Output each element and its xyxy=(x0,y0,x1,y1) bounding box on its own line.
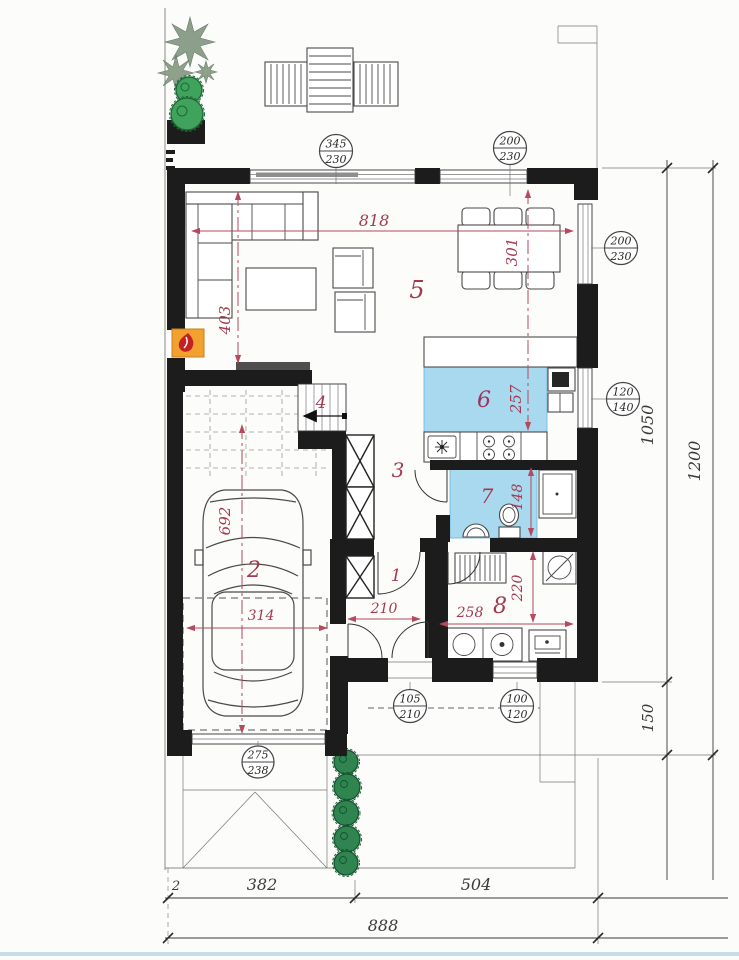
window-dining-right xyxy=(578,204,592,284)
bushes-row xyxy=(332,749,362,877)
armchairs xyxy=(333,248,375,332)
site-dim-main-height: 1050 xyxy=(638,405,657,446)
svg-text:140: 140 xyxy=(613,401,634,414)
car-mirror xyxy=(303,550,311,565)
room-label-garage: 2 xyxy=(246,558,261,583)
svg-text:200: 200 xyxy=(610,235,632,248)
svg-text:120: 120 xyxy=(613,386,634,399)
entrance-threshold xyxy=(388,662,432,678)
room-label-bath: 7 xyxy=(481,484,494,508)
scan-edge-line xyxy=(0,952,739,956)
svg-text:120: 120 xyxy=(507,708,528,721)
dim-circle-dining-right: 200 230 xyxy=(591,232,638,265)
dim-utility-depth: 220 xyxy=(510,575,526,603)
dim-dining-depth: 301 xyxy=(503,238,521,267)
dim-circle-kitchen-window: 120 140 xyxy=(591,383,640,416)
svg-text:230: 230 xyxy=(499,150,521,163)
window-utility xyxy=(493,662,537,678)
bush-icon xyxy=(333,773,362,802)
svg-text:345: 345 xyxy=(326,138,347,151)
bathroom-door xyxy=(415,470,447,502)
site-dim-house-span: 504 xyxy=(461,875,492,894)
dim-living-depth: 403 xyxy=(216,306,234,336)
site-dim-garage-span: 382 xyxy=(247,875,278,894)
terrace-furniture xyxy=(265,48,398,112)
entrance-door xyxy=(392,622,428,658)
bush-icon xyxy=(332,799,360,827)
dim-circle-entry-door: 105 210 xyxy=(394,682,427,723)
svg-text:230: 230 xyxy=(610,250,632,263)
fireplace-icon xyxy=(172,329,204,357)
window-kitchen xyxy=(578,368,592,428)
trees-top-left xyxy=(158,17,217,132)
site-dim-porch-height: 150 xyxy=(639,703,657,732)
bush-icon xyxy=(333,850,360,877)
car-mirror xyxy=(195,550,203,565)
dim-entry-width: 210 xyxy=(370,601,398,617)
garage-door xyxy=(192,734,325,744)
washing-machine-icon xyxy=(543,551,576,584)
svg-text:105: 105 xyxy=(400,693,421,706)
floor-plan-drawing: 818 301 403 257 148 692 314 210 258 220 … xyxy=(0,0,739,960)
roof-outline xyxy=(183,792,327,868)
dim-bath-depth: 148 xyxy=(510,484,526,511)
dim-garage-length: 692 xyxy=(216,507,234,536)
radiator xyxy=(455,553,506,583)
window-terrace-door xyxy=(250,170,415,183)
svg-text:100: 100 xyxy=(507,693,528,706)
coffee-table xyxy=(246,268,316,310)
room-label-stairs: 4 xyxy=(315,393,327,413)
room-label-entry: 1 xyxy=(391,566,402,586)
sideboard xyxy=(236,362,310,370)
dim-kitchen-depth: 257 xyxy=(507,384,525,414)
car xyxy=(195,490,311,716)
site-dim-offset: 2 xyxy=(171,879,180,894)
svg-text:230: 230 xyxy=(325,153,347,166)
room-label-hall: 3 xyxy=(392,458,405,482)
svg-text:200: 200 xyxy=(499,135,521,148)
wardrobe xyxy=(539,470,576,518)
room-label-kitchen: 6 xyxy=(477,388,491,413)
boiler xyxy=(529,630,566,661)
tree-icon xyxy=(195,61,217,83)
svg-text:275: 275 xyxy=(247,749,269,762)
dim-utility-width: 258 xyxy=(456,605,484,621)
dim-circle-garage-door: 275 238 xyxy=(242,741,274,778)
bush-icon xyxy=(171,98,203,130)
room-label-living: 5 xyxy=(409,276,424,304)
window-dining-top xyxy=(440,170,527,183)
site-dimensions-bottom: 2 382 504 888 xyxy=(163,758,728,944)
dim-garage-width: 314 xyxy=(248,608,275,624)
site-dim-total-height: 1200 xyxy=(685,441,704,482)
dim-living-width: 818 xyxy=(359,211,390,230)
fridge-icon xyxy=(548,368,575,412)
tree-icon xyxy=(165,17,215,67)
svg-text:238: 238 xyxy=(247,764,269,777)
dim-circle-utility-window: 100 120 xyxy=(501,682,534,723)
utility-counter xyxy=(445,628,522,661)
dim-circle-dining-top: 200 230 xyxy=(494,132,527,197)
site-dim-total-width: 888 xyxy=(368,916,399,935)
garage-entry-door xyxy=(348,624,382,658)
room-label-utility: 8 xyxy=(493,594,507,619)
ventilation-shaft xyxy=(346,435,374,598)
floor-plan-page: 818 301 403 257 148 692 314 210 258 220 … xyxy=(0,0,739,960)
svg-text:210: 210 xyxy=(399,708,421,721)
